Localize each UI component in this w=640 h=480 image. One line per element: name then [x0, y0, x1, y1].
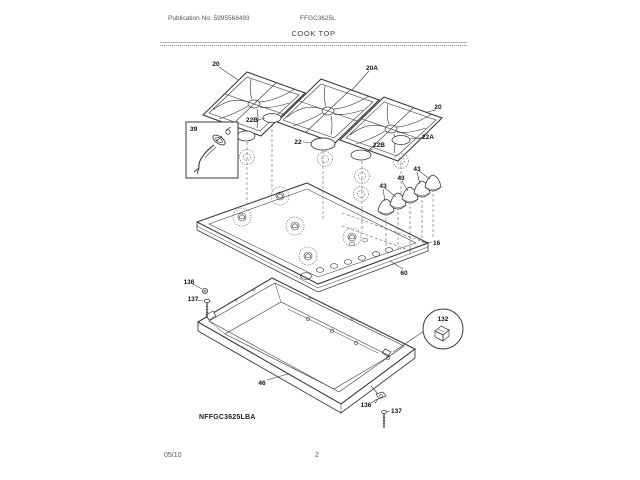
callout-screw-right-a: 136	[361, 402, 372, 409]
callout-grate-left: 20	[212, 61, 220, 68]
callout-cap-mid-right: 22B	[373, 142, 385, 149]
burner-heads-drawing	[378, 175, 441, 215]
callout-cap-right: 22A	[422, 134, 434, 141]
catalog-page: Publication No: 5995568493 FFGC3625L COO…	[0, 0, 640, 480]
callout-main-top: 16	[433, 240, 441, 247]
callout-cap-center: 22	[294, 139, 302, 146]
drawing-code: NFFGC3625LBA	[199, 414, 255, 421]
callout-bracket-detail: 132	[438, 316, 449, 323]
callout-cap-left: 22B	[246, 117, 258, 124]
callout-screw-right-b: 137	[391, 408, 402, 415]
callout-head-a: 43	[379, 183, 387, 190]
callout-top-trim: 60	[400, 270, 408, 277]
exploded-diagram: 20 20A 20 22B 22 22B 22A 39 43 43 43 16 …	[0, 0, 640, 480]
callout-grate-middle: 20A	[366, 65, 378, 72]
callout-grate-right: 20	[434, 104, 442, 111]
callout-igniter: 39	[190, 126, 198, 133]
callout-burner-box: 46	[258, 380, 266, 387]
footer-page-number: 2	[160, 452, 474, 459]
callout-head-b: 43	[397, 175, 405, 182]
callout-screw-left-a: 136	[184, 279, 195, 286]
screw-right-group	[371, 386, 390, 428]
callout-screw-left-b: 137	[188, 296, 199, 303]
callout-head-c: 43	[413, 166, 421, 173]
